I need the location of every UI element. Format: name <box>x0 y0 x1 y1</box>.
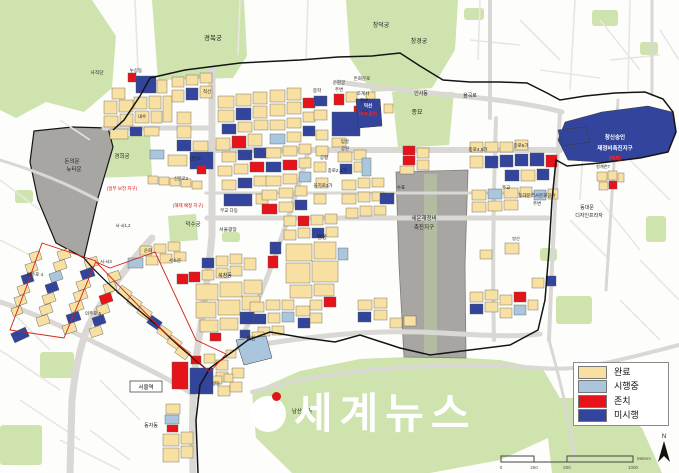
district-parcel <box>400 166 414 174</box>
district-parcel <box>238 150 252 160</box>
map-label: (해제결정) <box>359 110 378 117</box>
district-parcel <box>334 94 344 105</box>
map-label: 무교 다동 <box>220 207 238 214</box>
district-parcel <box>485 302 498 312</box>
district-parcel <box>42 292 56 304</box>
district-parcel <box>270 242 281 254</box>
district-parcel <box>472 190 486 200</box>
map-label: 종묘 <box>411 109 423 116</box>
district-parcel <box>236 94 251 106</box>
district-parcel <box>254 314 266 324</box>
district-parcel <box>163 96 172 122</box>
district-parcel <box>485 156 498 168</box>
legend-swatch <box>578 366 607 379</box>
district-parcel <box>358 192 370 202</box>
district-parcel <box>505 243 519 254</box>
district-parcel <box>218 166 232 176</box>
legend-label: 시행중 <box>614 382 639 391</box>
map-label: 창신숭인 <box>605 133 625 141</box>
legend-label: 완료 <box>614 368 631 377</box>
map-label: (해제) <box>609 155 622 162</box>
scalebar-tick-label: 1000 <box>628 465 639 470</box>
district-parcel <box>372 178 384 187</box>
district-parcel <box>200 73 212 83</box>
district-parcel <box>104 116 118 127</box>
district-parcel <box>181 432 193 444</box>
district-parcel <box>270 90 285 102</box>
scalebar-tick-label: 250 <box>530 465 538 470</box>
district-parcel <box>303 98 315 108</box>
district-parcel <box>500 308 512 318</box>
district-parcel <box>163 434 179 446</box>
district-parcel <box>286 263 310 283</box>
district-parcel <box>166 404 180 414</box>
district-parcel <box>45 281 59 293</box>
district-parcel <box>299 172 311 182</box>
map-label: 사직단 <box>90 69 104 76</box>
district-parcel <box>104 101 117 114</box>
district-parcel <box>358 178 370 188</box>
district-parcel <box>157 80 167 93</box>
district-parcel <box>470 304 483 314</box>
district-parcel <box>314 162 326 172</box>
district-parcel <box>189 272 200 282</box>
district-parcel <box>472 202 486 212</box>
district-parcel <box>314 110 327 120</box>
map-label: 세운재정비 <box>411 214 436 222</box>
map-label: 방산 <box>512 235 520 241</box>
district-parcel <box>250 302 264 312</box>
district-parcel <box>53 259 67 271</box>
district-parcel <box>168 242 180 251</box>
minor-road <box>570 220 610 260</box>
map-label: 남산공원 <box>292 407 312 415</box>
legend-item: 시행중 <box>578 380 664 393</box>
district-parcel <box>332 112 360 136</box>
district-parcel <box>609 181 617 189</box>
seoul-station-label: 서울역 <box>138 383 153 391</box>
district-parcel <box>358 312 371 322</box>
district-parcel <box>230 382 242 392</box>
district-parcel <box>73 289 88 302</box>
district-parcel <box>244 280 262 294</box>
district-parcel <box>504 200 518 210</box>
district-parcel <box>298 228 310 238</box>
district-parcel <box>505 170 519 181</box>
sewoon-green-strip <box>424 174 437 356</box>
district-parcel <box>287 88 301 100</box>
map-label: (일부 보전 지구) <box>107 185 138 192</box>
district-parcel <box>310 313 322 323</box>
district-parcel <box>528 300 538 310</box>
minor-road <box>570 0 575 90</box>
district-parcel <box>374 310 387 320</box>
district-parcel <box>69 300 84 313</box>
district-parcel <box>338 248 348 260</box>
district-parcel <box>342 180 356 190</box>
legend-label: 존치 <box>614 397 631 406</box>
park-area <box>15 190 33 203</box>
map-label: 조계사 <box>357 90 370 97</box>
district-parcel <box>283 174 297 184</box>
district-parcel <box>196 302 216 318</box>
map-label: 순화 <box>144 247 152 254</box>
park-area <box>392 92 454 148</box>
district-parcel <box>530 153 544 166</box>
district-parcel <box>218 386 230 396</box>
district-parcel <box>148 176 158 184</box>
district-parcel <box>216 256 228 266</box>
minor-road <box>90 430 130 460</box>
map-label: 양동 <box>212 380 220 386</box>
district-parcel <box>177 112 191 124</box>
district-parcel <box>358 300 372 310</box>
district-parcel <box>238 178 252 188</box>
district-parcel <box>250 162 264 172</box>
map-label: 경희궁 <box>114 152 129 160</box>
map-label: 율곡로 <box>463 93 477 99</box>
district-parcel <box>299 144 311 154</box>
minor-road <box>306 0 308 58</box>
district-parcel <box>200 320 218 332</box>
district-parcel <box>417 148 429 158</box>
park-area <box>168 214 198 242</box>
district-parcel <box>314 194 326 204</box>
map-label: 적선 <box>203 88 211 95</box>
minor-road <box>600 20 640 70</box>
district-parcel <box>312 261 338 282</box>
map-label: 중학 <box>313 87 321 94</box>
district-parcel <box>314 242 336 259</box>
map-label: 운현궁 <box>333 79 345 85</box>
map-label: 신문로 <box>189 155 201 161</box>
district-parcel <box>172 77 184 87</box>
map-label: 공원 <box>341 145 349 151</box>
district-parcel <box>202 258 214 268</box>
district-parcel <box>218 110 234 122</box>
district-parcel <box>240 312 254 324</box>
district-parcel <box>374 206 386 215</box>
park-area <box>592 10 618 26</box>
district-parcel <box>110 129 128 139</box>
district-parcel <box>128 258 143 268</box>
district-parcel <box>130 127 142 136</box>
district-parcel <box>295 200 307 210</box>
district-parcel <box>216 138 230 150</box>
district-parcel <box>270 134 285 144</box>
park-area <box>464 8 484 20</box>
map-label: 덕수궁 <box>185 221 200 228</box>
district-parcel <box>284 230 296 240</box>
district-parcel <box>222 152 236 162</box>
district-parcel <box>283 146 297 156</box>
map-canvas: 사직단누상동경복궁창덕궁창경궁경희궁종묘남산공원돈의문뉴타운세운재정비촉진지구동… <box>0 0 679 473</box>
map-label: 동자동 <box>144 422 158 429</box>
map-label: 종로4,5가 <box>469 146 488 153</box>
district-parcel <box>177 126 191 138</box>
minor-road <box>135 0 138 70</box>
district-parcel <box>128 73 136 82</box>
district-parcel <box>266 148 281 158</box>
district-parcel <box>283 160 297 170</box>
district-parcel <box>287 132 301 142</box>
district-parcel <box>310 300 322 310</box>
district-parcel <box>234 164 248 174</box>
map-label: 탑골 <box>341 138 349 144</box>
district-parcel <box>262 204 277 214</box>
district-parcel <box>390 318 402 328</box>
district-parcel <box>282 312 294 322</box>
district-parcel <box>282 300 294 310</box>
map-label: 의주로 4 <box>27 271 44 278</box>
map-label: 인사동 <box>414 90 428 97</box>
district-parcel <box>403 156 415 165</box>
district-parcel <box>112 88 125 99</box>
district-parcel <box>248 134 262 146</box>
minor-road <box>0 180 40 210</box>
district-parcel <box>253 92 267 104</box>
district-parcel <box>222 124 236 134</box>
district-parcel <box>608 171 617 180</box>
district-parcel <box>76 278 91 291</box>
district-parcel <box>299 158 311 168</box>
district-parcel <box>154 244 166 253</box>
minor-road <box>470 40 520 45</box>
district-parcel <box>303 112 315 122</box>
minor-road <box>640 260 679 300</box>
district-parcel <box>172 90 184 102</box>
district-parcel <box>254 120 268 130</box>
district-parcel <box>224 194 252 206</box>
district-parcel <box>66 311 81 324</box>
district-parcel <box>470 292 483 302</box>
district-parcel <box>196 284 218 300</box>
district-parcel <box>224 374 233 382</box>
district-parcel <box>11 327 30 343</box>
district-parcel <box>298 318 310 328</box>
park-area <box>222 232 240 242</box>
map-label: 누상동 <box>130 67 142 74</box>
district-parcel <box>172 362 188 389</box>
district-parcel <box>303 126 315 136</box>
district-parcel <box>417 160 429 170</box>
district-parcel <box>220 318 238 330</box>
north-label: N <box>662 434 666 440</box>
map-label: 창경궁 <box>411 37 428 45</box>
map-label: 종로6가 <box>514 142 529 149</box>
north-arrow: N <box>658 434 670 462</box>
district-parcel <box>325 214 337 224</box>
district-parcel <box>39 303 53 315</box>
district-parcel <box>514 292 526 302</box>
map-label: 주변 <box>335 86 343 93</box>
district-parcel <box>287 118 301 128</box>
map-label: 동대문역사문화공원 <box>518 192 555 199</box>
district-parcel <box>488 189 502 199</box>
minor-road <box>620 300 660 340</box>
map-label: 재정비촉진지구 <box>597 144 632 152</box>
district-parcel <box>500 142 513 152</box>
district-parcel <box>279 202 293 212</box>
map-label: 주변 <box>533 200 541 207</box>
park-area <box>0 425 42 465</box>
park-area <box>0 0 116 118</box>
district-parcel <box>244 258 256 270</box>
map-label: 청계천7 <box>596 163 611 170</box>
map-label: 서울광장 <box>219 226 237 233</box>
district-parcel <box>298 216 309 226</box>
map-label: 회현 <box>246 335 256 342</box>
district-parcel <box>167 425 178 432</box>
district-parcel <box>470 156 483 168</box>
district-parcel <box>295 186 307 196</box>
district-parcel <box>537 169 549 180</box>
district-parcel <box>532 278 544 288</box>
map-label: 내수 <box>138 113 146 120</box>
district-parcel <box>346 92 357 102</box>
district-parcel <box>286 244 312 261</box>
district-parcel <box>149 96 161 109</box>
district-parcel <box>403 146 415 155</box>
district-parcel <box>618 173 624 182</box>
legend-item: 미시행 <box>578 409 664 422</box>
district-parcel <box>314 284 334 296</box>
district-parcel <box>346 208 358 218</box>
district-parcel <box>360 206 372 216</box>
map-label: 신문로2 <box>174 175 189 181</box>
map-label: 디자인프라자 <box>575 212 603 219</box>
map-label: 서-서3 <box>100 258 112 265</box>
scalebar-unit: Meters <box>637 456 652 461</box>
legend-swatch <box>578 395 607 408</box>
district-parcel <box>218 300 240 315</box>
district-parcel <box>222 180 236 190</box>
map-label: 공평 <box>320 154 328 160</box>
district-parcel <box>151 111 162 123</box>
map-label: 뉴타운 <box>66 165 81 173</box>
minor-road <box>630 160 670 200</box>
district-parcel <box>270 120 285 130</box>
district-parcel <box>514 305 526 315</box>
district-parcel <box>150 150 164 159</box>
map-label: 명동 <box>317 234 327 241</box>
district-parcel <box>204 354 215 363</box>
district-parcel <box>266 162 281 172</box>
district-parcel <box>515 154 528 166</box>
district-parcel <box>324 297 336 307</box>
district-parcel <box>404 316 416 326</box>
map-label: 창덕궁 <box>373 21 390 29</box>
district-parcel <box>163 448 179 462</box>
map-label: 의주로 5 <box>85 310 102 317</box>
legend-swatch <box>578 380 607 393</box>
map-label: (해제 예정 지구) <box>173 202 204 209</box>
map-label: 을지로2가 <box>313 182 332 189</box>
district-parcel <box>220 282 242 297</box>
district-parcel <box>193 141 208 151</box>
district-parcel <box>230 254 242 264</box>
district-parcel <box>181 446 193 458</box>
district-parcel <box>521 170 535 181</box>
district-parcel <box>500 155 513 167</box>
district-parcel <box>597 172 607 181</box>
district-parcel <box>338 152 352 162</box>
district-parcel <box>226 350 236 358</box>
district-parcel <box>168 155 187 166</box>
district-parcel <box>146 256 158 265</box>
district-parcel <box>362 158 371 176</box>
district-parcel <box>290 285 312 298</box>
map-label: 종로2,3가 <box>328 167 347 174</box>
district-parcel <box>197 166 206 174</box>
district-parcel <box>266 176 281 186</box>
district-parcel <box>218 96 234 108</box>
district-parcel <box>380 193 394 204</box>
park-area <box>556 296 592 324</box>
district-parcel <box>99 292 113 304</box>
district-parcel <box>316 130 328 140</box>
north-arrow-icon <box>658 441 670 462</box>
scalebar-tick-label: 500 <box>563 465 571 470</box>
park-area <box>640 42 658 55</box>
map-label: 서-서1,2 <box>116 222 132 229</box>
district-parcel <box>202 270 214 280</box>
district-parcel <box>177 274 188 284</box>
district-parcel <box>296 306 310 316</box>
district-parcel <box>284 216 296 226</box>
legend-item: 존치 <box>578 395 664 408</box>
district-parcel <box>186 75 198 85</box>
district-parcel <box>177 140 191 151</box>
map-label: 경복궁 <box>204 33 222 42</box>
district-parcel <box>266 300 280 310</box>
map-label: 북창동 <box>218 272 232 279</box>
legend-swatch <box>578 409 607 422</box>
map-label: 익선 <box>364 102 372 109</box>
district-parcel <box>165 415 179 424</box>
scalebar-tick-label: 0 <box>500 465 503 470</box>
map-label: 촉진지구 <box>414 223 434 231</box>
minor-road <box>600 200 640 250</box>
district-parcel <box>159 177 169 185</box>
district-parcel <box>480 250 492 259</box>
district-parcel <box>103 281 117 293</box>
minor-road <box>660 30 679 60</box>
district-parcel <box>326 227 338 237</box>
district-parcel <box>287 102 301 114</box>
district-parcel <box>374 298 387 308</box>
district-parcel <box>599 182 608 190</box>
minor-road <box>628 0 630 90</box>
district-parcel <box>268 256 278 268</box>
map-label: 동대문 <box>580 204 594 211</box>
district-parcel <box>270 104 285 116</box>
district-parcel <box>236 108 251 120</box>
legend-label: 미시행 <box>614 411 639 420</box>
district-parcel <box>49 270 63 282</box>
map-label: 돈의문 <box>64 158 79 165</box>
donuimun-newtown-zone <box>30 127 113 258</box>
district-parcel <box>488 201 502 211</box>
legend-item: 완료 <box>578 366 664 379</box>
park-area <box>40 352 74 378</box>
minor-road <box>520 20 560 60</box>
district-parcel <box>210 333 221 341</box>
district-parcel <box>253 106 267 118</box>
park-area <box>646 216 666 242</box>
district-parcel <box>186 88 198 100</box>
district-parcel <box>262 190 277 200</box>
